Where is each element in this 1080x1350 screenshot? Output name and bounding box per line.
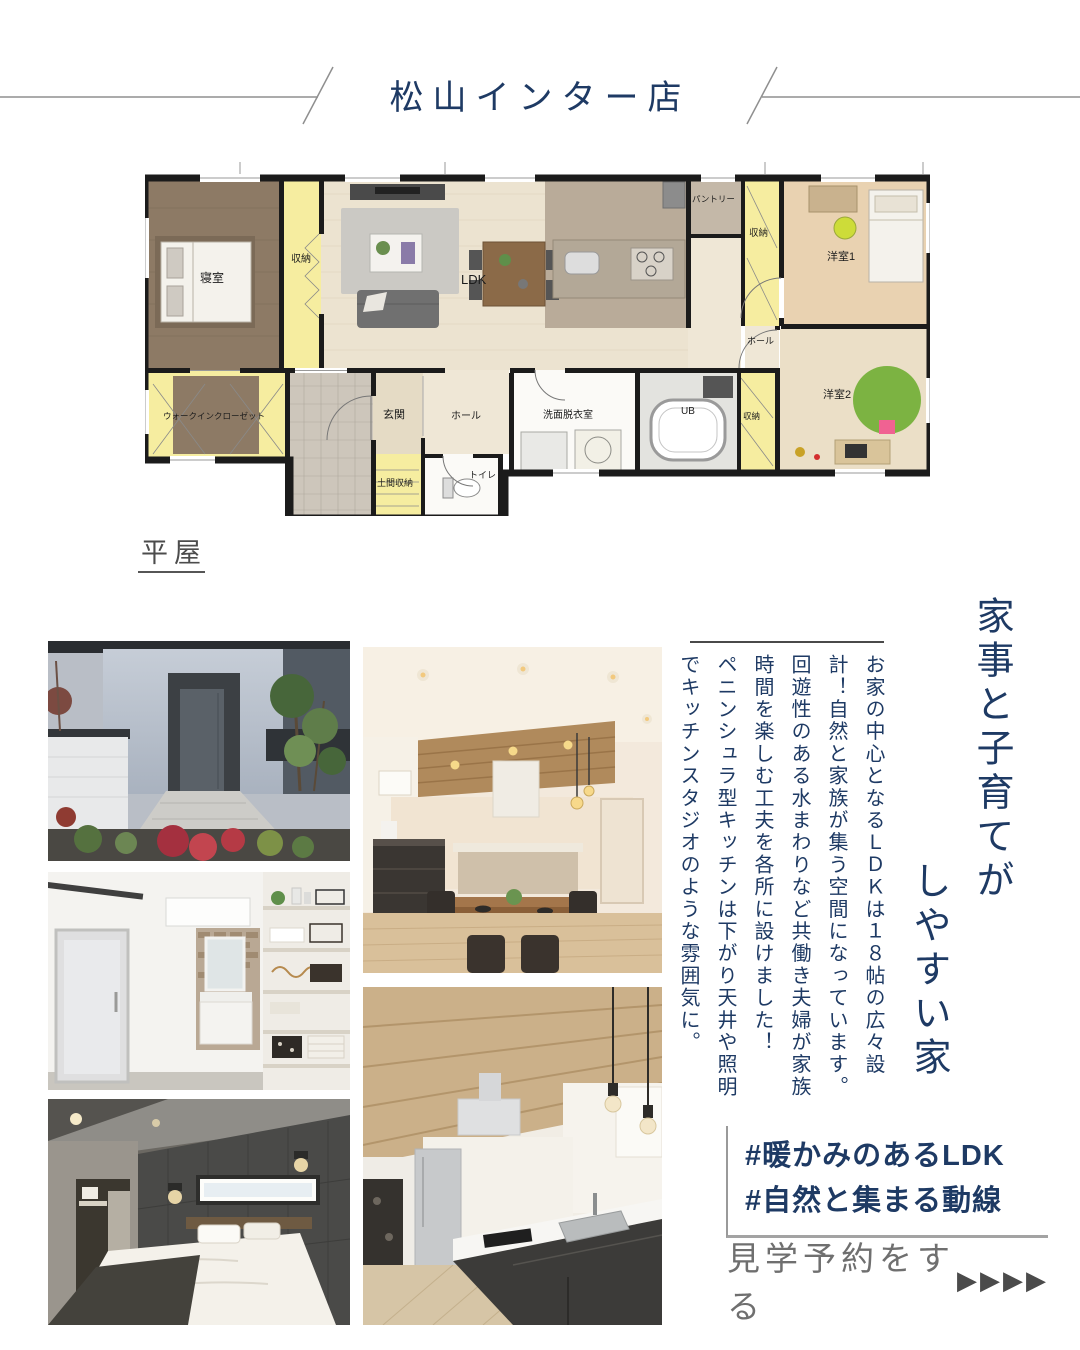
room-label-western-room2: 洋室2 (823, 387, 851, 401)
body-column-2: 計！自然と家族が集う空間になっています。 (817, 654, 854, 1116)
dining-kitchen-photo (363, 647, 662, 973)
room-label-walk-in-closet: ウォークインクローゼット (163, 411, 265, 421)
room-label-hall-lower: ホール (451, 410, 481, 422)
room-label-closet2: 収納 (749, 227, 768, 239)
body-column-3: 回遊性のある水まわりなど共働き夫婦が家族 (780, 654, 817, 1116)
room-label-bedroom: 寝室 (200, 270, 224, 285)
room-label-washroom: 洗面脱衣室 (543, 408, 593, 421)
headline-line1: 家事と子育てが (959, 596, 1022, 1101)
hashtag-ldk: #暖かみのあるLDK (745, 1134, 1048, 1179)
exterior-approach-photo (48, 641, 350, 861)
forward-arrows-icon: ▶▶▶▶ (957, 1265, 1049, 1296)
room-label-pantry: パントリー (692, 194, 735, 204)
room-label-unit-bath: UB (681, 406, 695, 417)
body-column-4: 時間を楽しむ工夫を各所に設けました！ (743, 654, 780, 1116)
body-text-rule (690, 641, 884, 643)
plan-type-label: 平屋 (141, 531, 207, 570)
room-label-toilet: トイレ (469, 470, 496, 480)
vertical-body-text: お家の中心となるＬＤＫは１８帖の広々設 計！自然と家族が集う空間になっています。… (669, 654, 891, 1116)
body-column-5: ペニンシュラ型キッチンは下がり天井や照明 (706, 654, 743, 1116)
vertical-headline: 家事と子育てが しやすい家 (896, 596, 1022, 1101)
plan-type-underline (138, 571, 205, 573)
room-label-ldk: LDK (461, 272, 487, 287)
room-label-closet3: 収納 (743, 411, 760, 421)
headline-line2: しやすい家 (896, 861, 959, 1101)
bedroom-photo (48, 1099, 350, 1325)
room-label-entrance: 玄関 (383, 407, 405, 421)
dimension-ticks (240, 162, 923, 174)
hashtag-box: #暖かみのあるLDK #自然と集まる動線 (726, 1126, 1048, 1238)
tour-reservation-cta[interactable]: 見学予約をする ▶▶▶▶ (727, 1252, 1049, 1308)
floorplan-diagram: 寝室 収納 LDK パントリー 収納 洋室1 ホール ウォークインクローゼット … (145, 148, 930, 516)
room-label-hall-upper: ホール (747, 336, 774, 346)
flyer-page: 松山インター店 (0, 0, 1080, 1350)
tour-reservation-label: 見学予約をする (727, 1232, 957, 1328)
room-label-doma-storage: 土間収納 (377, 477, 413, 488)
sanitary-room-photo (48, 872, 350, 1090)
body-column-6: でキッチンスタジオのような雰囲気に。 (669, 654, 706, 1116)
kitchen-photo (363, 987, 662, 1325)
room-label-western-room1: 洋室1 (827, 249, 855, 263)
body-column-1: お家の中心となるＬＤＫは１８帖の広々設 (854, 654, 891, 1116)
store-name-title: 松山インター店 (0, 70, 1080, 119)
room-label-closet1: 収納 (291, 252, 311, 265)
hashtag-flow: #自然と集まる動線 (745, 1179, 1048, 1224)
